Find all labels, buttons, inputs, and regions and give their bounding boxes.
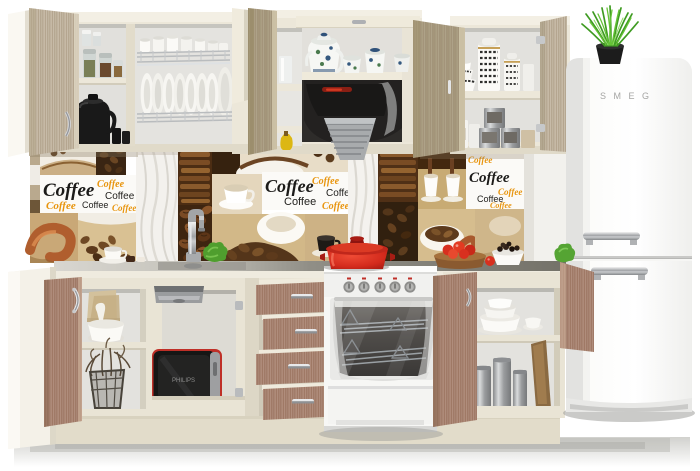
svg-text:Coffee: Coffee — [312, 176, 340, 187]
svg-text:PHILIPS: PHILIPS — [172, 378, 195, 384]
svg-text:Coffee: Coffee — [112, 203, 136, 213]
svg-text:Coffee: Coffee — [105, 191, 135, 202]
svg-text:Coffee: Coffee — [97, 179, 125, 190]
svg-text:SMEG: SMEG — [600, 91, 657, 101]
svg-text:Coffee: Coffee — [265, 176, 314, 196]
svg-text:Coffee: Coffee — [43, 180, 95, 201]
svg-text:Coffee: Coffee — [46, 200, 76, 212]
svg-text:Coffee: Coffee — [469, 170, 510, 186]
svg-text:Coffee: Coffee — [490, 201, 512, 210]
svg-text:Coffee: Coffee — [82, 200, 108, 210]
svg-text:Coffee: Coffee — [322, 201, 350, 212]
svg-text:Coffee: Coffee — [284, 196, 316, 208]
